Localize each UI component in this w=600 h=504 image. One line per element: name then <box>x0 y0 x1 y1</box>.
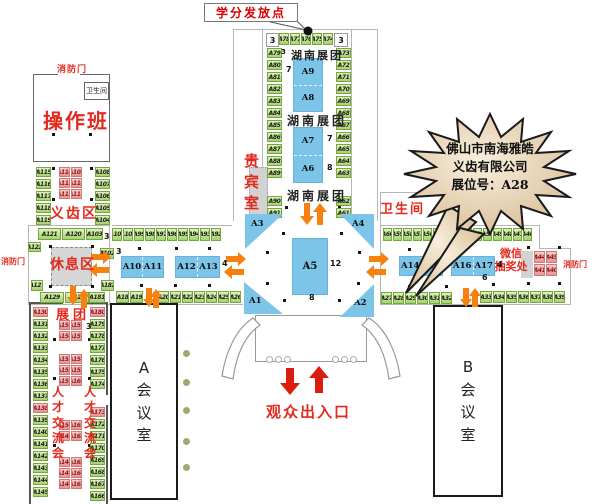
count-marker: 4 <box>497 260 503 269</box>
pillar-dot <box>90 167 93 170</box>
booth: A96 <box>167 228 177 241</box>
booth: A121 <box>38 228 61 240</box>
booth: A138 <box>33 403 48 413</box>
booth: A83 <box>267 96 282 106</box>
right-top-row: A60A59A58A57A56A55A54A53A52A51A50A49A48A… <box>383 228 532 241</box>
booth: A58 <box>403 228 412 241</box>
booth: A47 <box>513 228 522 241</box>
stand-a4: A4 <box>340 214 374 249</box>
pillar-dot <box>174 284 177 287</box>
stand-a14-a15: A14 A15 <box>399 256 443 276</box>
booth: A34 <box>493 291 505 303</box>
booth: A179 <box>90 319 105 329</box>
restroom-right-label: 卫生间 <box>380 198 425 217</box>
booth: A159 <box>71 365 82 375</box>
booth: A136 <box>33 379 48 389</box>
stair-box-left: 3 <box>266 33 279 47</box>
booth: A178 <box>90 331 105 341</box>
pillar-dot <box>492 283 495 286</box>
booth: A54 <box>443 228 452 241</box>
pillar-dot <box>49 285 52 288</box>
booth: A95 <box>178 228 188 241</box>
booth: A106 <box>95 191 110 201</box>
vip-room-label: 贵 宾 室 <box>244 151 259 214</box>
stand-label: A10 <box>122 257 142 277</box>
stand-label: A16 <box>452 257 473 275</box>
pillar-dot <box>408 248 411 251</box>
booth: A44 <box>534 251 545 263</box>
pillar-dot <box>208 284 211 287</box>
booth: A115 <box>36 167 51 177</box>
count-marker: 3 <box>116 247 122 256</box>
row-a33-a34: A33A34 <box>480 291 505 303</box>
booth: A113 <box>59 178 70 188</box>
pillar-dot <box>52 198 55 201</box>
pillar-dot <box>53 377 56 380</box>
booth: A28 <box>393 292 404 304</box>
count-marker: 8 <box>309 293 315 302</box>
pillar-dot <box>358 251 361 254</box>
booth: A175 <box>90 367 105 377</box>
pillar-dot <box>266 282 269 285</box>
booth: A99 <box>134 228 144 241</box>
booth: A137 <box>33 391 48 401</box>
pillar-dot <box>53 338 56 341</box>
booth: A130 <box>33 307 48 317</box>
pillar-dot <box>558 282 561 285</box>
booth: A100 <box>123 228 133 241</box>
bottom-left-column: A130A131A132A133A134A135A136A137A138A139… <box>33 307 48 497</box>
booth: A92 <box>211 228 221 241</box>
entrance-label: 观众出入口 <box>266 401 351 422</box>
booth: A86 <box>267 132 282 142</box>
booth: A167 <box>90 479 105 489</box>
starburst-text: 佛山市南海雅皓 义齿有限公司 展位号：A28 <box>415 140 565 194</box>
gate-wing-right <box>362 318 400 379</box>
pillar-dot <box>90 198 93 201</box>
stand-a1: A1 <box>244 282 283 314</box>
flow-arrow-right <box>369 252 389 266</box>
booth: A146 <box>59 479 70 489</box>
talent-grid-4: A148A163A147A164A146A165 <box>59 457 82 489</box>
booth: A39 <box>554 291 565 303</box>
booth: A29 <box>405 292 416 304</box>
booth: A71 <box>336 72 351 82</box>
booth: A19 <box>130 291 143 303</box>
hunan-pavilion-label-2: 湖南展团 <box>287 112 347 129</box>
booth: A32 <box>441 292 452 304</box>
pillar-dot <box>445 285 448 288</box>
booth: A66 <box>336 132 351 142</box>
wall <box>570 248 571 305</box>
booth: A116 <box>36 179 51 189</box>
pillar-dot <box>445 248 448 251</box>
booth: A49 <box>493 228 502 241</box>
pillar-dot <box>175 247 178 250</box>
stand-a2: A2 <box>340 284 374 317</box>
booth: A109 <box>71 167 82 177</box>
booth: A84 <box>267 108 282 118</box>
count-marker: 7 <box>286 65 292 74</box>
center-top-row: A101A100A99A98A97A96A95A94A93A92 <box>112 228 221 241</box>
booth: A152 <box>59 365 70 375</box>
pillar-dot <box>527 282 530 285</box>
booth: A141 <box>33 439 48 449</box>
booth: A56 <box>423 228 432 241</box>
talent-grid-2: A153A158A152A159A151A160 <box>59 354 82 386</box>
count-marker: 4 <box>222 259 228 268</box>
booth: A165 <box>71 479 82 489</box>
pillar-dot <box>340 232 343 235</box>
booth: A111 <box>71 189 82 199</box>
booth: A89 <box>267 168 282 178</box>
mid-top-strip: A121A120 <box>38 228 85 240</box>
count-marker: 3 <box>104 232 110 241</box>
booth: A18 <box>116 291 129 303</box>
booth: A20 <box>158 291 169 303</box>
stand-a9-a8: A9 A8 <box>293 58 323 112</box>
pillar-dot <box>558 246 561 249</box>
gate-circle <box>350 356 357 363</box>
star-line-2: 义齿有限公司 <box>415 158 565 176</box>
booth: A63 <box>336 168 351 178</box>
wall <box>112 225 232 226</box>
booth: A48 <box>503 228 512 241</box>
row-a20-a26: A20A21A22A23A24A25A26 <box>158 291 241 303</box>
star-line-3: 展位号：A28 <box>415 176 565 194</box>
credit-point-callout: 学分发放点 <box>204 3 298 22</box>
booth: A35 <box>506 291 517 303</box>
booth: A129 <box>40 292 64 303</box>
rest-area-label: 休息区 <box>50 254 95 274</box>
booth: A108 <box>95 167 110 177</box>
booth: A64 <box>336 156 351 166</box>
booth: A161 <box>71 420 82 430</box>
wall <box>539 225 540 249</box>
booth: A21 <box>170 291 181 303</box>
booth: A163 <box>71 457 82 467</box>
booth: A164 <box>71 468 82 478</box>
entrance-gate-box <box>255 315 367 362</box>
green-dot <box>183 350 190 357</box>
wall <box>380 225 540 226</box>
flow-arrow-left <box>366 265 386 279</box>
green-dot <box>183 407 190 414</box>
booth: A57 <box>413 228 422 241</box>
bottom-right-column-upper: A180A179A178A177A176A175A174 <box>90 307 105 389</box>
booth: A38 <box>542 291 553 303</box>
booth: A103 <box>86 228 103 240</box>
booth: A60 <box>383 228 392 241</box>
booth: A82 <box>267 84 282 94</box>
pillar-dot <box>357 282 360 285</box>
booth: A177 <box>90 343 105 353</box>
mid-bottom-strip: A129A128 <box>40 292 89 303</box>
stand-label: A6 <box>294 155 322 183</box>
booth: A94 <box>189 228 199 241</box>
booth: A41 <box>534 264 545 276</box>
entrance-arrow-down <box>280 368 300 395</box>
talent-fair-label-right: 人 才 交 流 会 <box>84 385 96 462</box>
booth: A53 <box>453 228 462 241</box>
booth: A79 <box>267 48 282 58</box>
booth: A119 <box>36 215 51 225</box>
star-line-1: 佛山市南海雅皓 <box>415 140 565 158</box>
booth: A40 <box>546 264 557 276</box>
entrance-arrows <box>280 366 329 395</box>
pillar-dot <box>266 251 269 254</box>
lottery-pink-grid: A44A45A41A40 <box>534 251 557 276</box>
count-marker: 7 <box>327 134 333 143</box>
booth: A144 <box>33 475 48 485</box>
stand-label: A15 <box>421 257 443 275</box>
booth: A46 <box>523 228 532 241</box>
green-dot <box>183 464 190 471</box>
booth: A88 <box>267 156 282 166</box>
booth: A110 <box>71 178 82 188</box>
booth: A76 <box>301 33 311 45</box>
booth: A90 <box>267 196 282 206</box>
exhibition-floorplan: A78A77A76A75A74 3 3 A79A80A81A82A83A84A8… <box>0 0 600 504</box>
fire-door-label-left: 消防门 <box>1 256 25 267</box>
count-marker: 12 <box>330 259 341 268</box>
stand-a7-a6: A7 A6 <box>293 127 323 183</box>
booth: A132 <box>33 331 48 341</box>
conference-hall-a: A 会 议 室 <box>110 303 178 500</box>
pillar-dot <box>208 247 211 250</box>
booth: A154 <box>59 331 70 341</box>
booth: A65 <box>336 144 351 154</box>
green-dot <box>183 379 190 386</box>
booth: A158 <box>71 354 82 364</box>
booth: A74 <box>323 33 333 45</box>
booth: A80 <box>267 60 282 70</box>
booth: A69 <box>336 96 351 106</box>
booth: A162 <box>71 431 82 441</box>
booth: A153 <box>59 354 70 364</box>
operation-room-label: 操作班 <box>43 105 109 134</box>
booth: A70 <box>336 84 351 94</box>
hall-a-label: A 会 议 室 <box>136 357 151 447</box>
booth: A145 <box>33 487 48 497</box>
booth: A23 <box>194 291 205 303</box>
booth: A81 <box>267 72 282 82</box>
booth: A181 <box>89 292 105 303</box>
stand-a10-a11: A10 A11 <box>121 256 164 278</box>
booth: A33 <box>480 291 492 303</box>
booth: A134 <box>33 355 48 365</box>
stand-label: A12 <box>176 257 197 277</box>
booth: A112 <box>59 189 70 199</box>
booth: A142 <box>33 451 48 461</box>
booth: A120 <box>62 228 85 240</box>
pillar-dot <box>49 245 52 248</box>
booth: A143 <box>33 463 48 473</box>
row-a35-a39: A35A36A37A38A39 <box>506 291 565 303</box>
wall <box>539 248 570 249</box>
booth: A75 <box>312 33 322 45</box>
gate-circle <box>332 356 339 363</box>
booth: A97 <box>156 228 166 241</box>
booth: A117 <box>36 191 51 201</box>
wall <box>106 302 108 395</box>
booth: A31 <box>429 292 440 304</box>
gate-circle <box>341 356 348 363</box>
booth: A85 <box>267 120 282 130</box>
booth: A59 <box>393 228 402 241</box>
booth: A122 <box>28 242 41 252</box>
booth: A176 <box>90 355 105 365</box>
gate-circle <box>284 356 291 363</box>
booth: A30 <box>417 292 428 304</box>
booth: A139 <box>33 415 48 425</box>
row-a18-a19: A18A19 <box>116 291 143 303</box>
booth: A166 <box>90 491 105 501</box>
booth: A135 <box>33 367 48 377</box>
booth: A37 <box>530 291 541 303</box>
stand-label: A14 <box>400 257 421 275</box>
tower-top-row: A78A77A76A75A74 <box>279 33 333 45</box>
star-tail <box>406 206 476 293</box>
pillar-dot <box>285 206 288 209</box>
count-marker: 3 <box>281 48 286 56</box>
booth: A24 <box>206 291 217 303</box>
booth: A45 <box>546 251 557 263</box>
booth: A36 <box>518 291 529 303</box>
stand-label: A1 <box>249 296 262 306</box>
booth: A107 <box>95 179 110 189</box>
booth: A147 <box>59 468 70 478</box>
fire-door-label-right: 消防门 <box>563 259 587 270</box>
booth: A25 <box>218 291 229 303</box>
green-dot <box>183 438 190 445</box>
stand-a3: A3 <box>245 214 283 249</box>
booth: A128 <box>65 292 89 303</box>
dental-left-column: A115A116A117A118A119 <box>36 167 51 225</box>
dental-pink-grid: A114A109A113A110A112A111 <box>59 167 82 199</box>
row-a27-a32: A27A28A29A30A31A32 <box>381 292 452 304</box>
booth: A55 <box>433 228 442 241</box>
stand-a5: A5 <box>292 238 328 295</box>
hunan-pavilion-label-1: 湖南展团 <box>291 47 343 63</box>
stand-a12-a13: A12 A13 <box>175 256 220 278</box>
count-marker: 6 <box>482 273 488 282</box>
pillar-dot <box>52 167 55 170</box>
booth: A52 <box>463 228 472 241</box>
wall <box>29 302 31 504</box>
booth: A26 <box>230 291 241 303</box>
hall-b-label: B 会 议 室 <box>460 356 475 446</box>
booth: A77 <box>290 33 300 45</box>
pillar-dot <box>283 299 286 302</box>
booth: A22 <box>182 291 193 303</box>
booth: A51 <box>473 228 482 241</box>
pillar-dot <box>408 285 411 288</box>
pillar-dot <box>140 284 143 287</box>
booth: A131 <box>33 319 48 329</box>
gate-circle <box>266 356 273 363</box>
booth: A168 <box>90 467 105 477</box>
pillar-dot <box>91 245 94 248</box>
booth: A180 <box>90 307 105 317</box>
booth: A87 <box>267 144 282 154</box>
booth: A50 <box>483 228 492 241</box>
stand-label: A11 <box>142 257 163 277</box>
fire-door-label-top: 消防门 <box>57 62 87 75</box>
stair-box-right: 3 <box>334 33 348 47</box>
booth: A118 <box>36 203 51 213</box>
talent-grid-1: A155A156A154A157 <box>59 320 82 341</box>
denture-zone-label: 义齿区 <box>50 203 98 223</box>
booth: A133 <box>33 343 48 353</box>
flow-arrow-right <box>226 252 246 266</box>
booth: A114 <box>59 167 70 177</box>
pillar-dot <box>338 299 341 302</box>
stand-label: A3 <box>251 219 264 229</box>
stand-label: A7 <box>294 128 322 155</box>
wall <box>106 405 108 504</box>
booth: A98 <box>145 228 155 241</box>
stand-label: A13 <box>197 257 219 277</box>
booth: A160 <box>71 376 82 386</box>
hunan-pavilion-label-3: 湖南展团 <box>287 187 347 204</box>
booth: A182 <box>101 280 114 291</box>
stand-label: A2 <box>354 298 367 308</box>
exhibit-group-label: 展团 <box>56 304 90 323</box>
booth: A102 <box>100 248 114 259</box>
talent-fair-label-left: 人 才 交 流 会 <box>52 385 64 462</box>
booth: A78 <box>279 33 289 45</box>
stand-label: A4 <box>352 219 365 229</box>
stand-label: A8 <box>294 85 322 112</box>
booth: A157 <box>71 331 82 341</box>
restroom-small-label: 卫生间 <box>86 86 107 96</box>
pillar-dot <box>91 285 94 288</box>
count-marker: 3 <box>86 322 92 331</box>
booth: A93 <box>200 228 210 241</box>
booth: A127 <box>31 280 43 291</box>
booth: A140 <box>33 427 48 437</box>
count-marker: 8 <box>327 163 333 172</box>
gate-circle <box>275 356 282 363</box>
entrance-arrow-up <box>309 366 329 393</box>
booth: A101 <box>112 228 122 241</box>
booth: A27 <box>381 292 392 304</box>
pillar-dot <box>282 232 285 235</box>
pillar-dot <box>138 247 141 250</box>
conference-hall-b: B 会 议 室 <box>433 305 503 497</box>
tower-left-column: A79A80A81A82A83A84A85A86A87A88A89 <box>267 48 282 178</box>
wechat-lottery-label: 微信 抽奖处 <box>488 248 534 273</box>
